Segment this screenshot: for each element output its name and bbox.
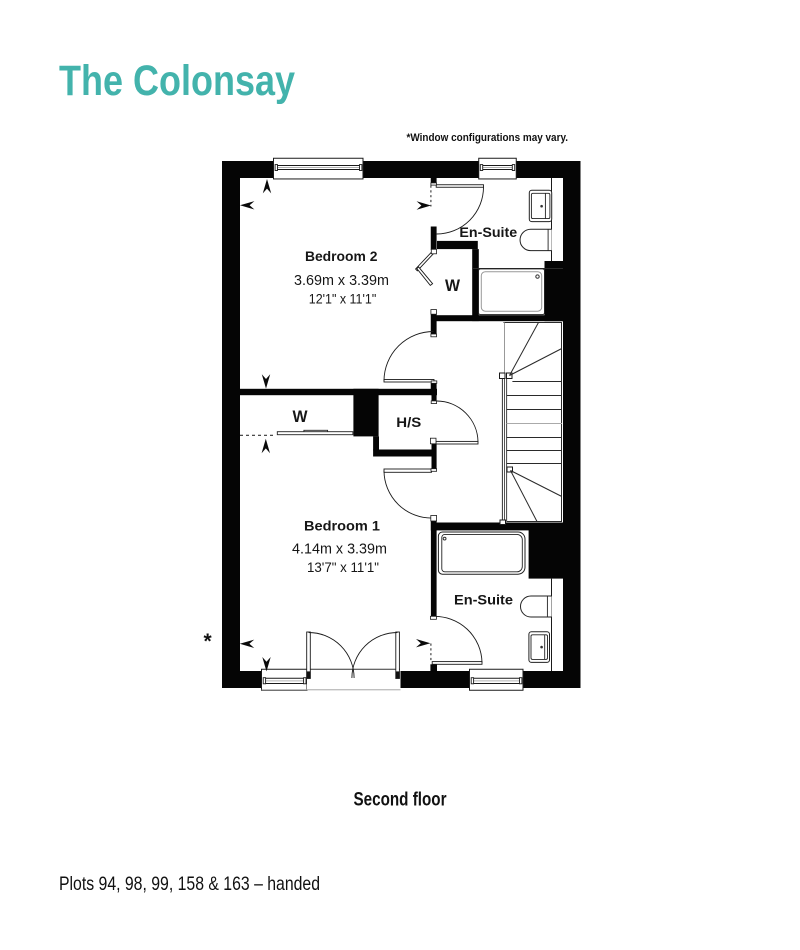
svg-text:H/S: H/S <box>396 415 421 430</box>
svg-text:W: W <box>445 276 461 295</box>
svg-text:En-Suite: En-Suite <box>459 225 517 240</box>
svg-text:Second floor: Second floor <box>354 788 447 810</box>
svg-text:En-Suite: En-Suite <box>454 593 513 608</box>
svg-text:*: * <box>204 630 213 653</box>
svg-text:4.14m x 3.39m: 4.14m x 3.39m <box>292 542 387 558</box>
svg-text:*Window configurations may var: *Window configurations may vary. <box>407 132 569 144</box>
svg-text:Bedroom 1: Bedroom 1 <box>304 518 380 534</box>
svg-text:12'1" x 11'1": 12'1" x 11'1" <box>309 290 377 306</box>
svg-text:The Colonsay: The Colonsay <box>59 57 295 105</box>
svg-text:W: W <box>293 407 309 426</box>
svg-text:Bedroom 2: Bedroom 2 <box>305 248 378 264</box>
svg-text:13'7" x 11'1": 13'7" x 11'1" <box>307 559 379 575</box>
svg-text:3.69m x 3.39m: 3.69m x 3.39m <box>294 273 389 289</box>
svg-text:Plots 94, 98, 99, 158 & 163 –: Plots 94, 98, 99, 158 & 163 – handed <box>59 873 320 895</box>
